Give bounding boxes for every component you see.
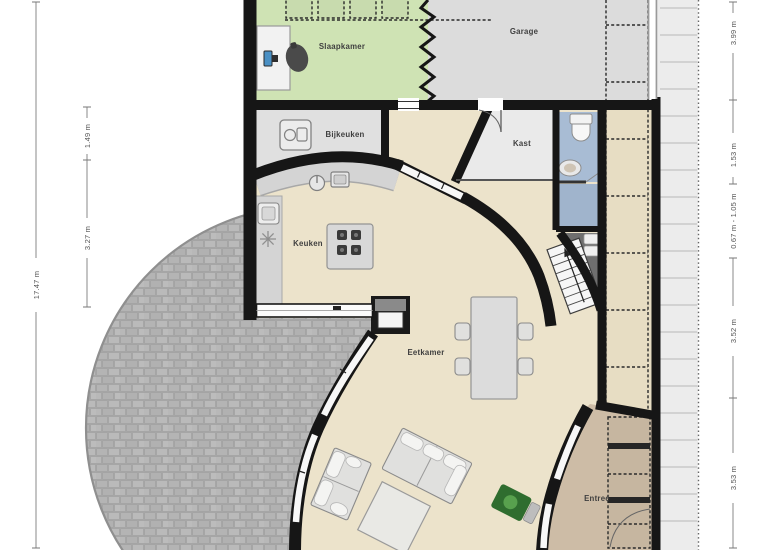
square-sink-icon bbox=[331, 172, 349, 187]
fireplace bbox=[371, 296, 410, 334]
shower-room-floor bbox=[556, 184, 604, 228]
dim-label-total-height: 17.47 m bbox=[32, 271, 41, 300]
washbasin-icon bbox=[559, 160, 581, 176]
dim-label-right-4: 3.52 m bbox=[729, 319, 738, 343]
entree-closet-dashed bbox=[608, 417, 650, 548]
toilet-icon bbox=[570, 114, 592, 141]
dining-chair bbox=[455, 358, 470, 375]
garage-door-gap bbox=[478, 98, 503, 111]
bijkeuken-label: Bijkeuken bbox=[325, 130, 364, 139]
dim-label-left-lower: 3.27 m bbox=[83, 226, 92, 250]
dim-label-right-1: 3.99 m bbox=[729, 21, 738, 45]
slaapkamer-label: Slaapkamer bbox=[319, 42, 365, 51]
fridge-icon bbox=[258, 203, 279, 224]
door-gap-window bbox=[398, 98, 419, 111]
kast-label: Kast bbox=[513, 139, 531, 148]
garage-floor bbox=[428, 0, 650, 102]
kitchen-window bbox=[257, 304, 373, 317]
round-sink-icon bbox=[310, 176, 325, 191]
kitchen-island bbox=[327, 224, 373, 269]
dining-chair bbox=[518, 358, 533, 375]
dim-label-right-2: 1.53 m bbox=[729, 143, 738, 167]
dim-label-left-upper: 1.49 m bbox=[83, 124, 92, 148]
washing-machine-icon bbox=[280, 120, 311, 150]
eetkamer-label: Eetkamer bbox=[407, 348, 444, 357]
garage-label: Garage bbox=[510, 27, 539, 36]
floorplan-canvas: Slaapkamer Garage Bijkeuken Kast Keuken … bbox=[0, 0, 770, 550]
dim-label-right-5: 3.53 m bbox=[729, 466, 738, 490]
dim-label-right-3: 0.67 m - 1.05 m bbox=[729, 193, 738, 249]
dining-chair bbox=[455, 323, 470, 340]
entree-label: Entree bbox=[584, 494, 610, 503]
snowflake-icon bbox=[260, 231, 276, 247]
dining-chair bbox=[518, 323, 533, 340]
sidewalk-path bbox=[658, 0, 699, 550]
keuken-label: Keuken bbox=[293, 239, 323, 248]
